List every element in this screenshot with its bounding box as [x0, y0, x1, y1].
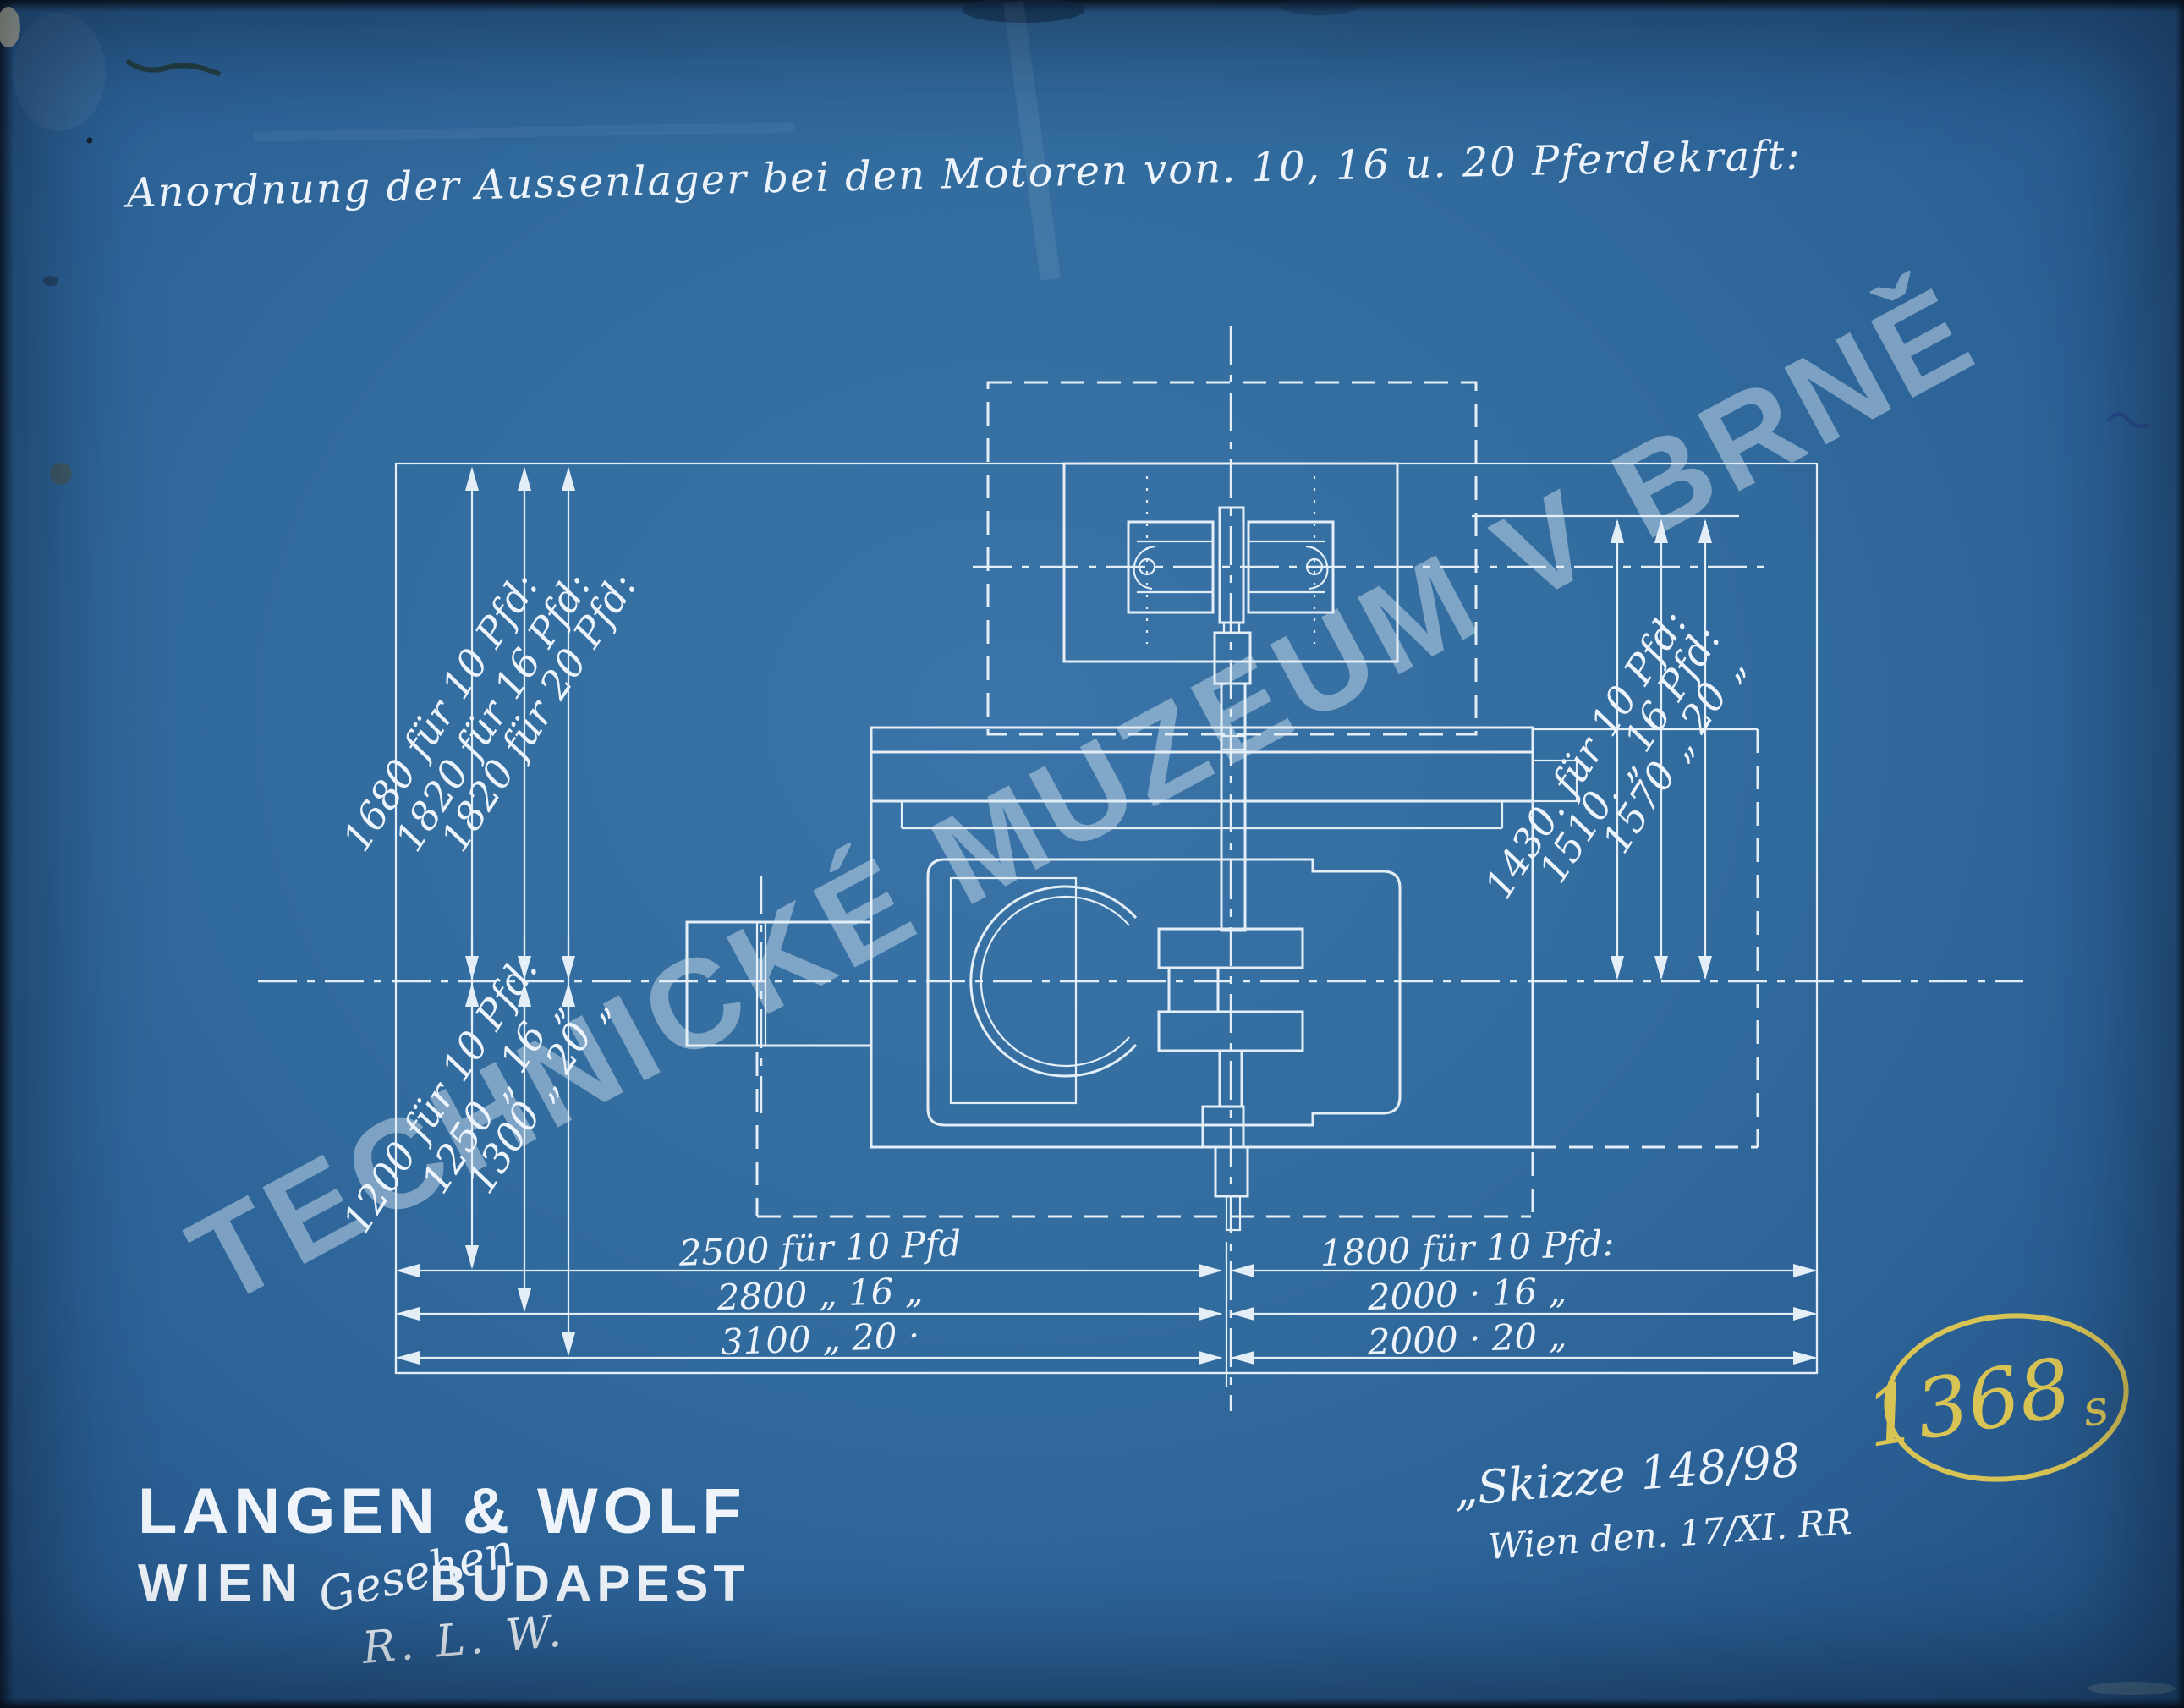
inventory-mark: 1368 s	[1858, 1304, 2134, 1491]
company-city-wien: WIEN	[138, 1554, 305, 1612]
dim-bottom-left-3: 3100 „ 20 ·	[720, 1315, 920, 1363]
company-name: LANGEN & WOLF	[138, 1475, 747, 1547]
sketch-place-date: Wien den. 17/XI. RR	[1486, 1501, 1852, 1568]
dimension-labels: 1680 für 10 Pfd: 1820 für 16 Pfd: 1820 f…	[333, 564, 1754, 1363]
sketch-annotation: „Skizze 148/98 Wien den. 17/XI. RR	[1451, 1433, 1853, 1568]
blueprint-sheet: TECHNICKÉ MUZEUM V BRNĚ	[0, 0, 2184, 1708]
sketch-number: „Skizze 148/98	[1451, 1433, 1803, 1517]
inventory-number: 1368 s	[1858, 1335, 2112, 1472]
inventory-number-suffix: s	[2078, 1377, 2112, 1438]
inventory-number-main: 1368	[1858, 1340, 2077, 1466]
dim-bottom-right-2: 2000 · 16 „	[1366, 1270, 1567, 1318]
dim-bottom-left-2: 2800 „ 16 „	[716, 1270, 924, 1319]
company-stamp: LANGEN & WOLF WIEN BUDAPEST Gesehen R. L…	[138, 1475, 749, 1674]
dim-bottom-left-1: 2500 für 10 Pfd	[678, 1222, 962, 1274]
stamp-initials: R. L. W.	[359, 1606, 568, 1674]
dim-bottom-right-3: 2000 · 20 „	[1366, 1315, 1567, 1363]
blueprint-canvas: TECHNICKÉ MUZEUM V BRNĚ	[0, 0, 2184, 1708]
drawing-title: Anordnung der Aussenlager bei den Motore…	[123, 132, 1802, 217]
dim-bottom-right-1: 1800 für 10 Pfd:	[1320, 1222, 1615, 1274]
engine-body	[928, 859, 1400, 1230]
